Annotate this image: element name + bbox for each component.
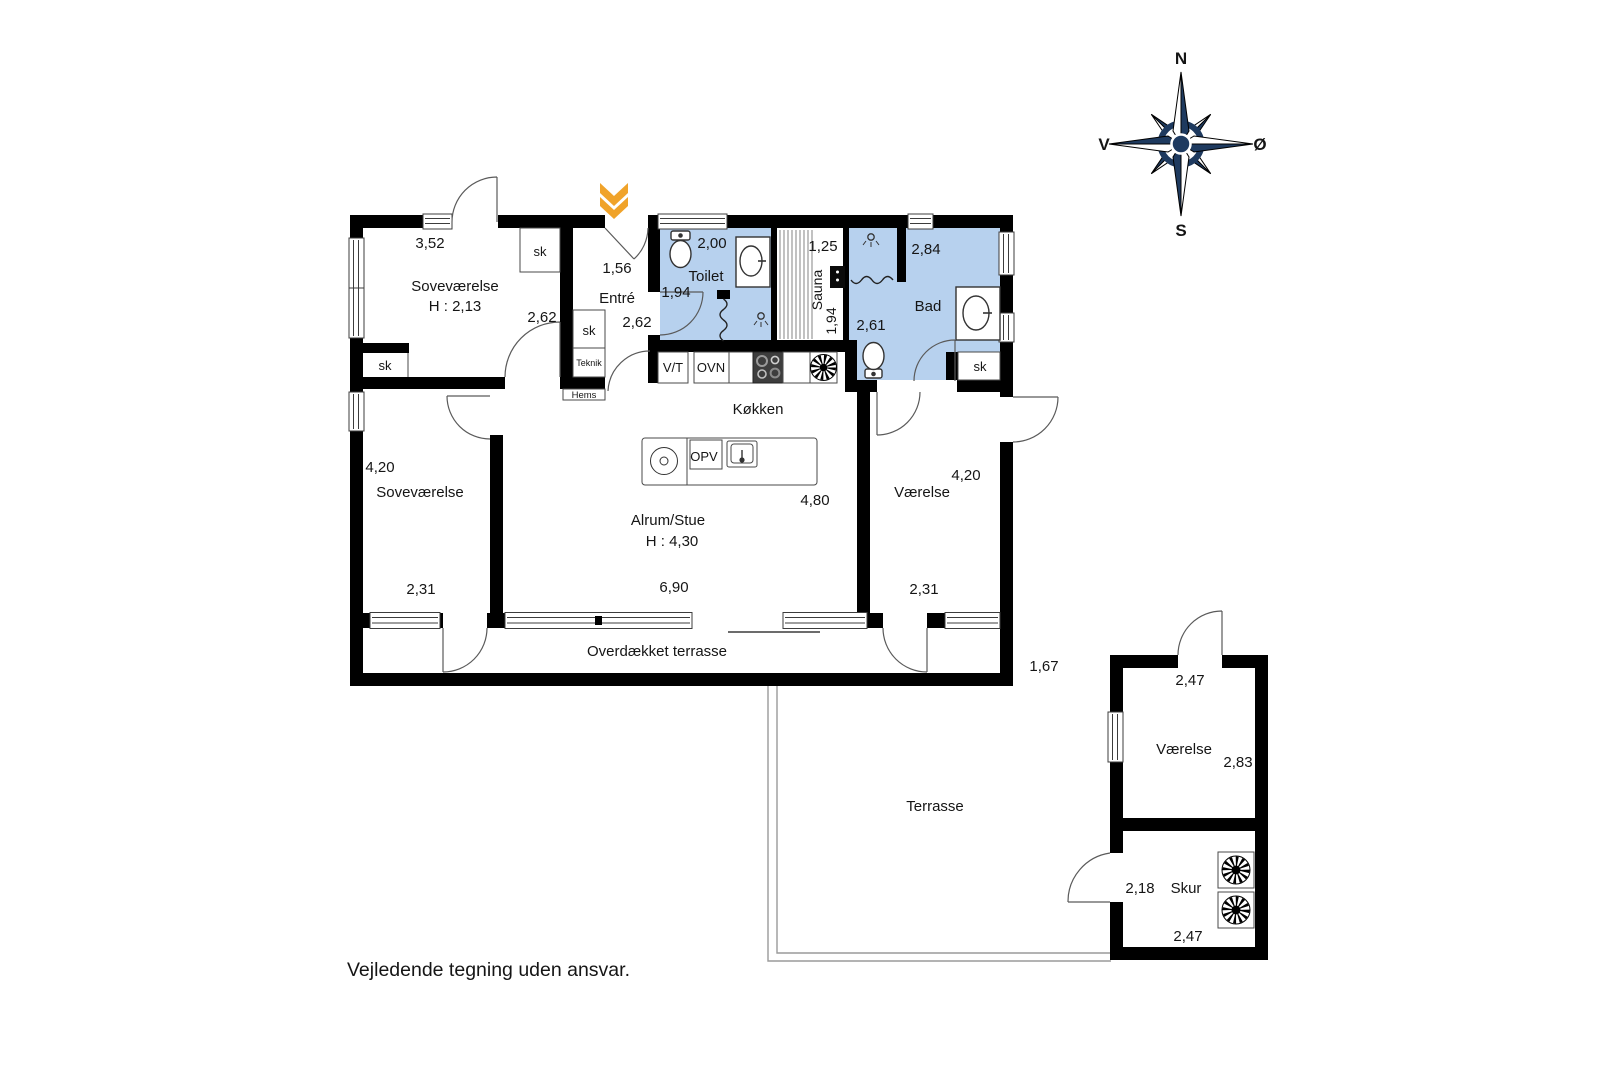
shed-fan-icon-1 bbox=[1218, 852, 1254, 888]
toilet-icon bbox=[670, 231, 691, 268]
shed-label: Skur bbox=[1171, 880, 1202, 897]
island-sink-icon bbox=[727, 441, 757, 467]
gap-dim-label: 1,67 bbox=[1029, 658, 1058, 675]
room-sauna-label: Sauna bbox=[809, 270, 825, 311]
terrace-door-east bbox=[883, 628, 927, 672]
dishwasher-icon bbox=[651, 448, 678, 475]
bath-toilet-icon bbox=[863, 343, 884, 379]
dim-room-east-w: 4,20 bbox=[951, 467, 980, 484]
opv-label: OPV bbox=[690, 449, 718, 464]
bedroom-nw-interior-door bbox=[505, 322, 560, 377]
room-east-label: Værelse bbox=[894, 484, 950, 501]
dim-sauna-w: 1,25 bbox=[808, 238, 837, 255]
entrance-marker-icon bbox=[600, 183, 628, 219]
compass-west-label: V bbox=[1098, 135, 1110, 154]
ovn-label: OVN bbox=[697, 360, 725, 375]
sauna-bench-slats bbox=[780, 230, 812, 339]
shed-fan-icon-2 bbox=[1218, 892, 1254, 928]
dim-annex-room-w: 2,47 bbox=[1175, 672, 1204, 689]
annex bbox=[1068, 611, 1268, 960]
dim-sauna-d: 1,94 bbox=[823, 307, 839, 334]
sauna-fixtures bbox=[830, 266, 845, 288]
floor-plan-drawing: N S V Ø 3,52 Soveværelse H : 2,13 2,62 s… bbox=[0, 0, 1600, 1066]
dim-annex-room-d: 2,83 bbox=[1223, 754, 1252, 771]
terrace-door-west bbox=[443, 628, 487, 672]
floor-plan-page: N S V Ø 3,52 Soveværelse H : 2,13 2,62 s… bbox=[0, 0, 1600, 1066]
room-entre-label: Entré bbox=[599, 290, 635, 307]
annex-door bbox=[1178, 611, 1222, 655]
entre-living-door bbox=[608, 351, 650, 391]
vt-label: V/T bbox=[663, 360, 683, 375]
annex-room-label: Værelse bbox=[1156, 741, 1212, 758]
shed-door bbox=[1068, 853, 1110, 902]
closet-label-3: sk bbox=[583, 323, 597, 338]
room-kitchen-label: Køkken bbox=[733, 401, 784, 418]
extractor-fan-icon bbox=[811, 355, 837, 381]
closet-label-1: sk bbox=[534, 244, 548, 259]
dim-shed-d: 2,18 bbox=[1125, 880, 1154, 897]
closet-label-2: sk bbox=[379, 358, 393, 373]
entrance-door bbox=[605, 228, 648, 259]
room-living-height: H : 4,30 bbox=[646, 533, 699, 550]
toilet-sink-icon bbox=[736, 237, 770, 287]
dim-living-d: 4,80 bbox=[800, 492, 829, 509]
covered-terrace-label: Overdækket terrasse bbox=[587, 643, 727, 660]
dim-bad-w: 2,84 bbox=[911, 241, 940, 258]
closet-label-4: sk bbox=[974, 359, 988, 374]
room-toilet-label: Toilet bbox=[688, 268, 724, 285]
room-living-label: Alrum/Stue bbox=[631, 512, 705, 529]
bath-sink-icon bbox=[956, 287, 1000, 340]
room-bedroom-nw-label: Soveværelse bbox=[411, 278, 499, 295]
dim-entre-d: 2,62 bbox=[622, 314, 651, 331]
dim-bedroom-nw-d: 2,62 bbox=[527, 309, 556, 326]
compass-south-label: S bbox=[1175, 221, 1186, 240]
terrace-outline bbox=[768, 686, 1111, 961]
room-bad-label: Bad bbox=[915, 298, 942, 315]
kitchen-island bbox=[642, 438, 817, 485]
dim-bad-d: 2,61 bbox=[856, 317, 885, 334]
disclaimer-text: Vejledende tegning uden ansvar. bbox=[347, 959, 630, 981]
room-east-door bbox=[877, 392, 920, 435]
dim-entre-w: 1,56 bbox=[602, 260, 631, 277]
dim-living-w: 6,90 bbox=[659, 579, 688, 596]
room-bedroom-sw-label: Soveværelse bbox=[376, 484, 464, 501]
dim-shed-w: 2,47 bbox=[1173, 928, 1202, 945]
room-bedroom-nw-height: H : 2,13 bbox=[429, 298, 482, 315]
bedroom-sw-door bbox=[447, 396, 490, 439]
teknik-label: Teknik bbox=[576, 358, 602, 368]
east-exterior-door bbox=[1013, 397, 1058, 442]
stove-icon bbox=[753, 352, 783, 383]
compass-rose-icon: N S V Ø bbox=[1098, 49, 1266, 240]
terrace-label: Terrasse bbox=[906, 798, 964, 815]
compass-east-label: Ø bbox=[1253, 135, 1266, 154]
dim-bedroom-sw-w: 4,20 bbox=[365, 459, 394, 476]
hems-label: Hems bbox=[572, 390, 597, 401]
sauna-heater-icon bbox=[830, 266, 845, 288]
dim-bedroom-sw-d: 2,31 bbox=[406, 581, 435, 598]
dim-toilet-w: 2,00 bbox=[697, 235, 726, 252]
dim-bedroom-nw-w: 3,52 bbox=[415, 235, 444, 252]
dim-toilet-d: 1,94 bbox=[661, 284, 690, 301]
dim-room-east-d: 2,31 bbox=[909, 581, 938, 598]
compass-north-label: N bbox=[1175, 49, 1187, 68]
